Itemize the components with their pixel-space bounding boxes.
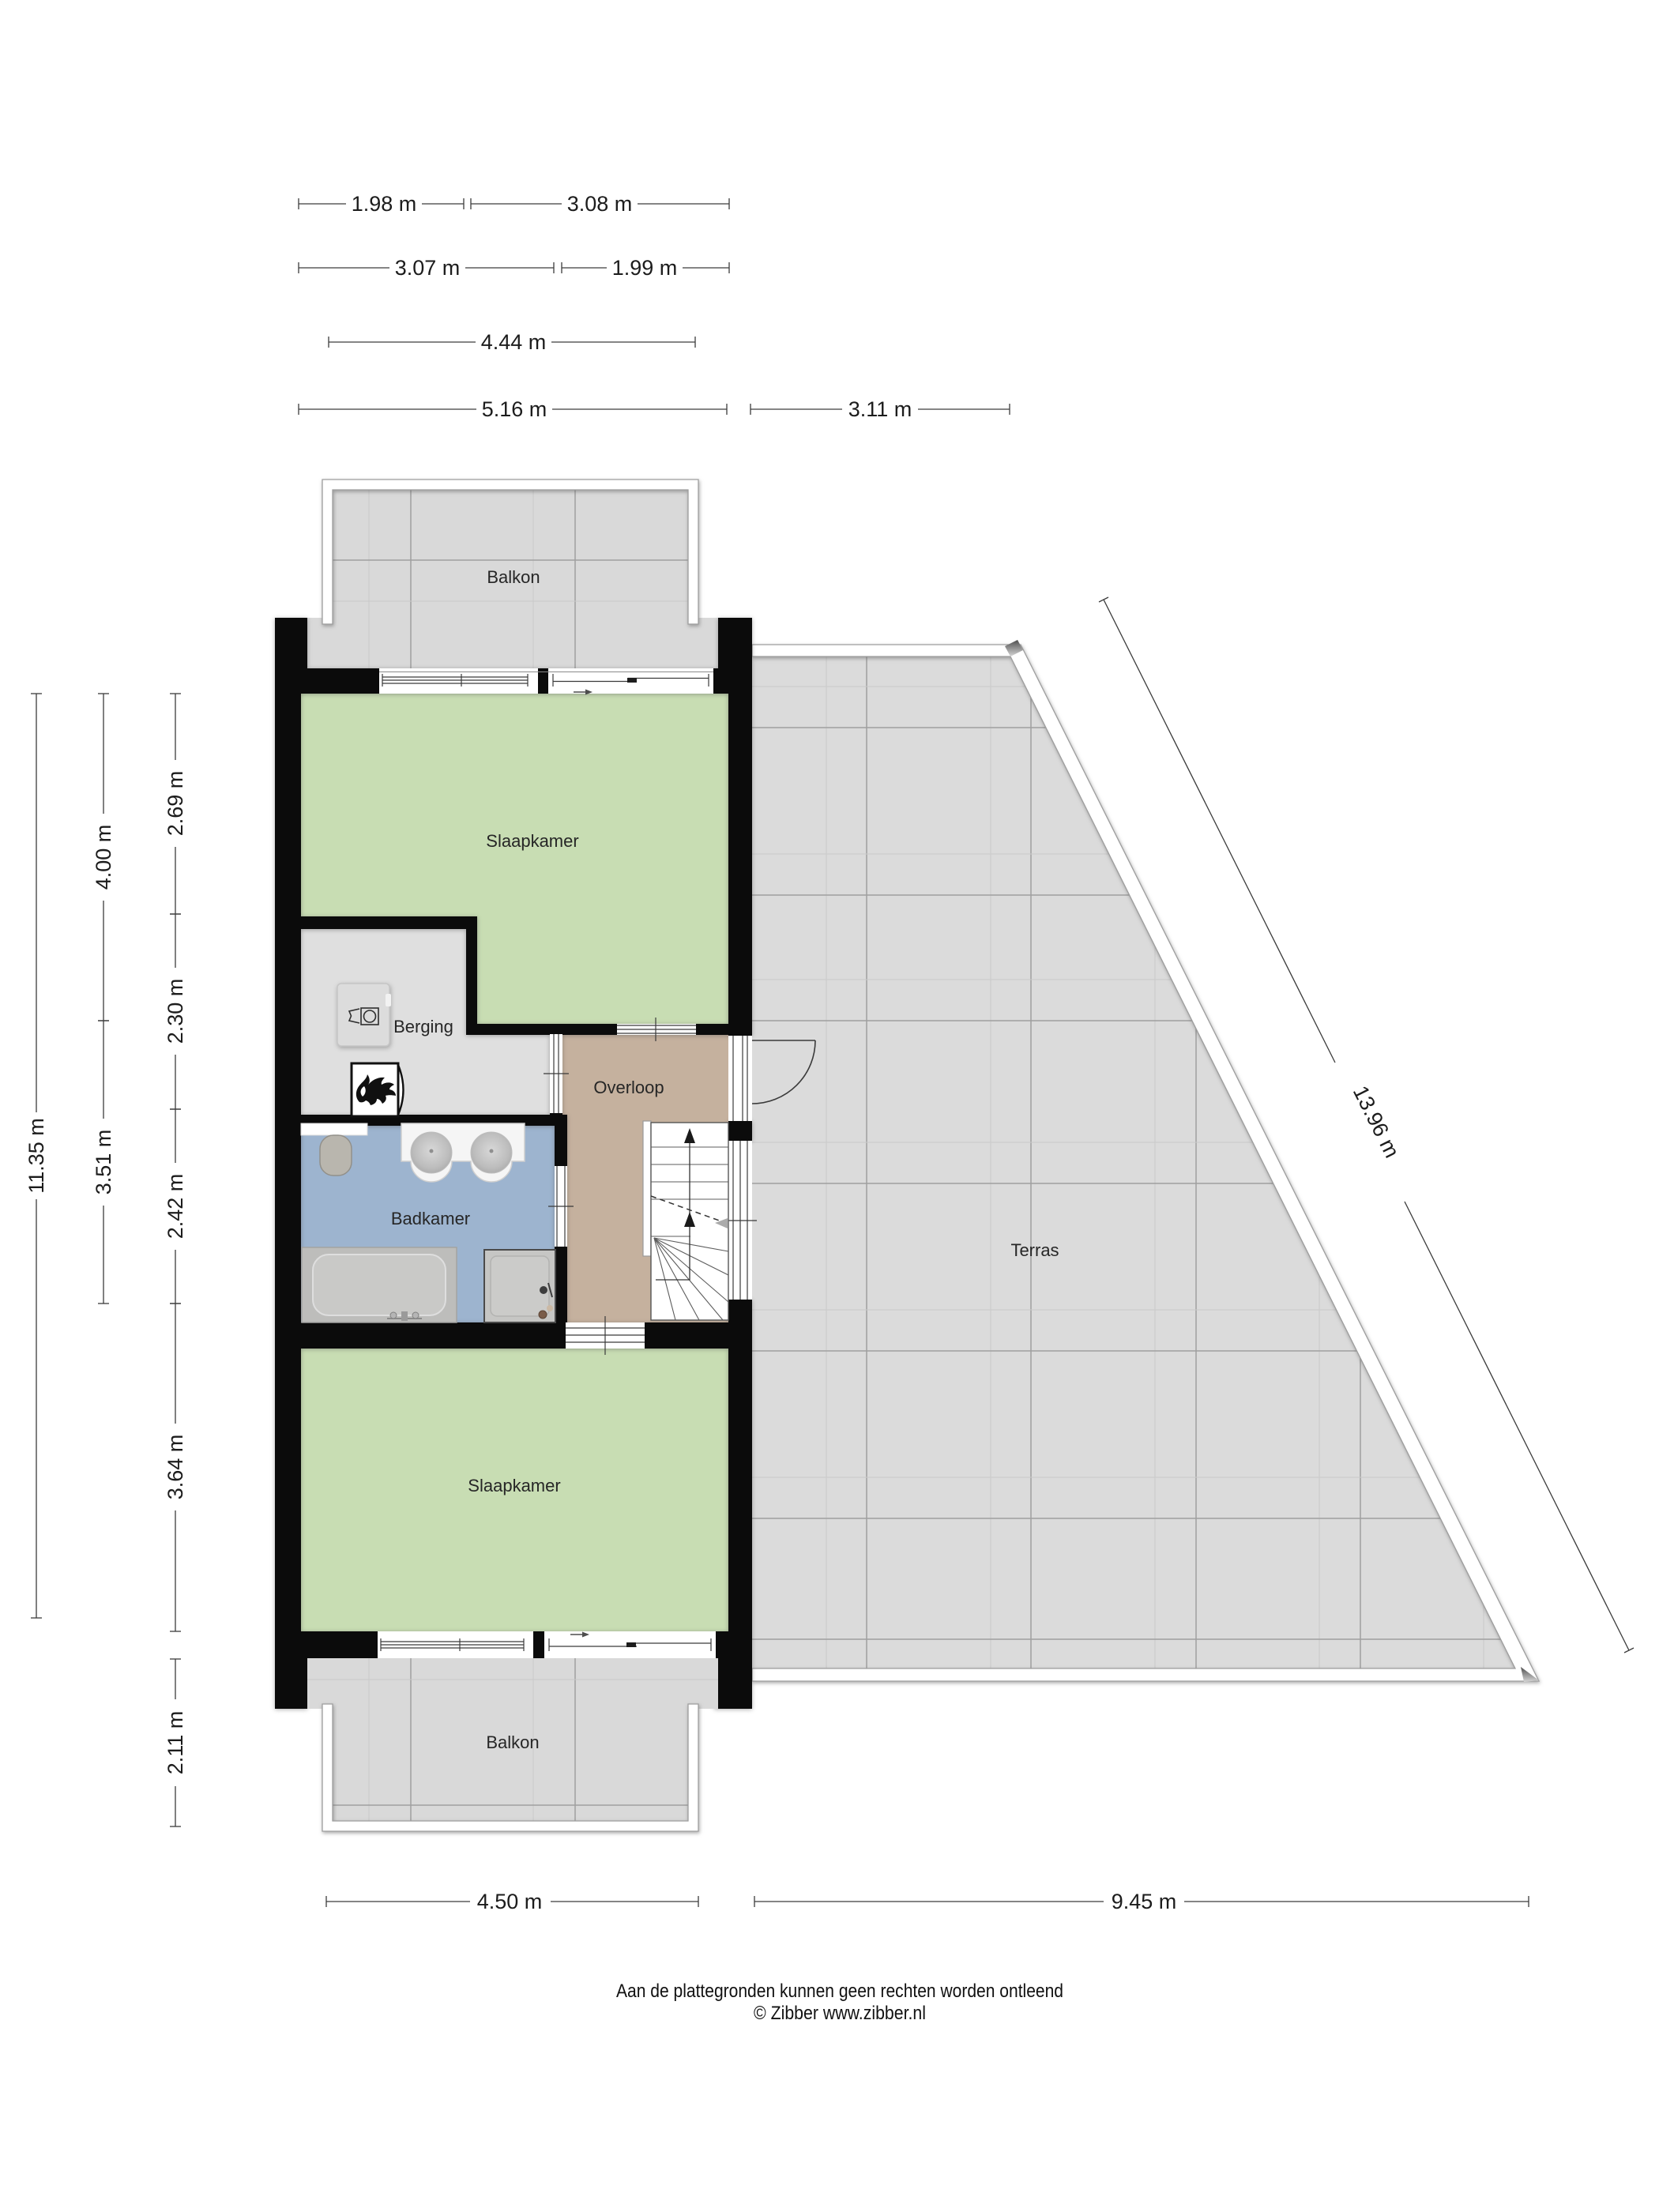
- svg-text:Slaapkamer: Slaapkamer: [486, 831, 578, 851]
- svg-text:1.99 m: 1.99 m: [612, 256, 678, 280]
- svg-text:5.16 m: 5.16 m: [482, 397, 547, 421]
- svg-text:3.64 m: 3.64 m: [164, 1435, 187, 1500]
- svg-text:Terras: Terras: [1010, 1240, 1059, 1260]
- svg-text:3.08 m: 3.08 m: [567, 192, 633, 216]
- svg-text:Slaapkamer: Slaapkamer: [468, 1476, 560, 1495]
- svg-text:4.00 m: 4.00 m: [92, 825, 115, 890]
- svg-text:© Zibber www.zibber.nl: © Zibber www.zibber.nl: [754, 2003, 926, 2024]
- svg-text:Balkon: Balkon: [486, 1732, 539, 1752]
- svg-text:Aan de plattegronden kunnen ge: Aan de plattegronden kunnen geen rechten…: [616, 1981, 1063, 2002]
- svg-text:3.07 m: 3.07 m: [395, 256, 461, 280]
- svg-text:Balkon: Balkon: [487, 567, 540, 587]
- svg-text:2.11 m: 2.11 m: [164, 1711, 187, 1775]
- svg-text:2.42 m: 2.42 m: [164, 1174, 187, 1240]
- svg-text:Badkamer: Badkamer: [391, 1209, 470, 1228]
- svg-text:2.69 m: 2.69 m: [164, 771, 187, 837]
- svg-text:11.35 m: 11.35 m: [24, 1118, 48, 1194]
- svg-text:9.45 m: 9.45 m: [1112, 1890, 1177, 1913]
- svg-text:3.11 m: 3.11 m: [848, 397, 912, 421]
- svg-text:Overloop: Overloop: [593, 1078, 664, 1097]
- svg-text:4.44 m: 4.44 m: [481, 330, 547, 354]
- svg-text:1.98 m: 1.98 m: [352, 192, 417, 216]
- svg-text:3.51 m: 3.51 m: [92, 1130, 115, 1195]
- svg-text:2.30 m: 2.30 m: [164, 979, 187, 1044]
- svg-text:Berging: Berging: [393, 1017, 453, 1036]
- svg-text:4.50 m: 4.50 m: [477, 1890, 543, 1913]
